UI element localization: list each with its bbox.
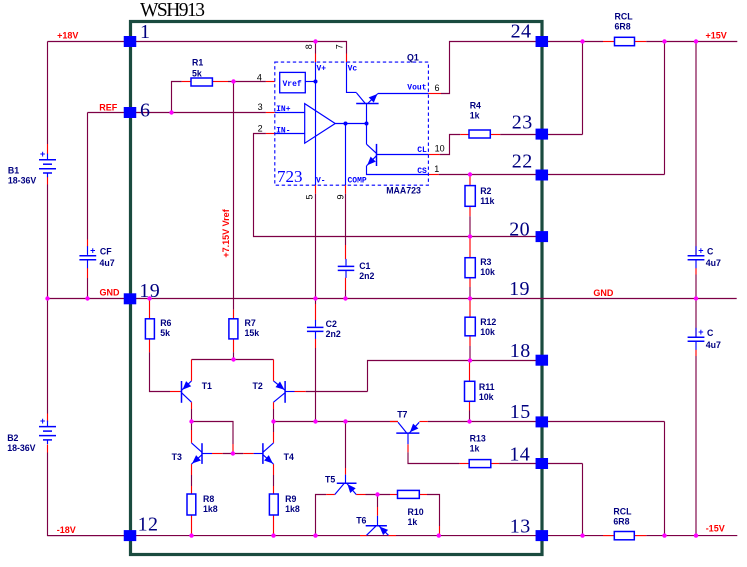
- svg-text:15k: 15k: [245, 328, 260, 338]
- svg-text:+18V: +18V: [57, 30, 78, 40]
- svg-text:2n2: 2n2: [326, 329, 341, 339]
- svg-text:B2: B2: [7, 433, 18, 443]
- svg-text:19: 19: [509, 278, 530, 300]
- svg-text:+: +: [90, 245, 95, 255]
- svg-text:WSH913: WSH913: [140, 0, 205, 21]
- svg-text:R8: R8: [203, 494, 214, 504]
- svg-text:4u7: 4u7: [706, 258, 721, 268]
- svg-text:T6: T6: [356, 516, 366, 526]
- svg-text:18-36V: 18-36V: [7, 443, 35, 453]
- svg-text:13: 13: [510, 516, 531, 538]
- svg-text:6: 6: [435, 83, 440, 93]
- svg-text:+: +: [40, 149, 45, 159]
- svg-text:10k: 10k: [480, 327, 495, 337]
- svg-text:6R8: 6R8: [615, 22, 631, 32]
- svg-text:Vc: Vc: [348, 65, 358, 74]
- svg-text:C2: C2: [326, 319, 337, 329]
- svg-text:8: 8: [304, 44, 314, 49]
- svg-text:C1: C1: [359, 261, 370, 271]
- svg-text:+: +: [40, 416, 45, 426]
- svg-text:22: 22: [512, 151, 533, 173]
- svg-text:+15V: +15V: [706, 31, 727, 41]
- svg-text:Q1: Q1: [407, 53, 419, 63]
- svg-text:T5: T5: [325, 475, 335, 485]
- svg-text:1: 1: [140, 21, 150, 43]
- svg-text:3: 3: [258, 102, 263, 112]
- svg-text:C: C: [707, 246, 714, 256]
- svg-text:CF: CF: [100, 246, 112, 256]
- svg-text:MAA723: MAA723: [386, 186, 421, 196]
- svg-text:12: 12: [138, 514, 159, 536]
- svg-text:T3: T3: [172, 452, 182, 462]
- svg-text:2n2: 2n2: [359, 271, 374, 281]
- svg-text:1: 1: [434, 164, 439, 174]
- svg-text:T1: T1: [202, 381, 212, 391]
- svg-text:5k: 5k: [160, 328, 170, 338]
- svg-text:V+: V+: [317, 65, 327, 74]
- svg-text:14: 14: [509, 444, 530, 466]
- svg-text:R11: R11: [479, 382, 495, 392]
- svg-text:5: 5: [305, 194, 315, 199]
- svg-text:10k: 10k: [480, 267, 495, 277]
- svg-text:T7: T7: [397, 410, 407, 420]
- svg-text:R12: R12: [480, 317, 496, 327]
- svg-text:R10: R10: [408, 507, 424, 517]
- svg-text:10: 10: [435, 144, 445, 154]
- svg-text:15: 15: [510, 401, 531, 423]
- svg-text:4: 4: [257, 73, 262, 83]
- svg-text:-18V: -18V: [57, 525, 76, 535]
- svg-text:1k8: 1k8: [285, 504, 300, 514]
- svg-text:5k: 5k: [192, 69, 202, 79]
- svg-text:V-: V-: [316, 177, 326, 186]
- svg-text:Vout: Vout: [407, 84, 426, 93]
- svg-text:IN-: IN-: [276, 126, 290, 135]
- svg-text:Vref: Vref: [283, 80, 302, 89]
- svg-text:11k: 11k: [480, 196, 494, 206]
- svg-text:+: +: [698, 245, 703, 255]
- svg-text:2: 2: [258, 124, 263, 134]
- svg-text:GND: GND: [593, 288, 614, 298]
- svg-text:+7.15V Vref: +7.15V Vref: [221, 208, 231, 257]
- svg-text:R7: R7: [245, 318, 256, 328]
- svg-text:19: 19: [139, 280, 160, 302]
- svg-text:CL: CL: [417, 146, 427, 155]
- svg-text:6R8: 6R8: [613, 516, 629, 526]
- svg-text:-15V: -15V: [706, 524, 725, 534]
- svg-text:C: C: [707, 328, 714, 338]
- svg-text:R13: R13: [470, 433, 486, 443]
- svg-text:9: 9: [336, 194, 346, 199]
- svg-text:1k: 1k: [470, 443, 480, 453]
- svg-text:4u7: 4u7: [100, 258, 115, 268]
- svg-text:18: 18: [510, 340, 531, 362]
- svg-text:1k8: 1k8: [203, 504, 218, 514]
- svg-text:24: 24: [511, 20, 532, 42]
- svg-text:R1: R1: [192, 58, 203, 68]
- svg-text:R4: R4: [470, 101, 481, 111]
- svg-text:REF: REF: [99, 102, 118, 112]
- svg-text:B1: B1: [8, 165, 19, 175]
- svg-text:R3: R3: [480, 257, 491, 267]
- svg-text:R9: R9: [285, 494, 296, 504]
- svg-text:T4: T4: [284, 452, 294, 462]
- svg-text:CS: CS: [417, 167, 427, 176]
- svg-text:23: 23: [512, 112, 533, 134]
- svg-text:18-36V: 18-36V: [8, 175, 36, 185]
- svg-text:T2: T2: [253, 381, 263, 391]
- svg-text:R6: R6: [160, 318, 171, 328]
- svg-text:+: +: [698, 327, 703, 337]
- svg-text:20: 20: [509, 218, 530, 240]
- svg-text:6: 6: [140, 100, 150, 122]
- svg-text:GND: GND: [100, 287, 121, 297]
- svg-text:723: 723: [277, 167, 303, 186]
- svg-text:1k: 1k: [470, 111, 480, 121]
- svg-text:10k: 10k: [479, 392, 494, 402]
- svg-text:COMP: COMP: [348, 177, 367, 186]
- svg-text:1k: 1k: [408, 517, 418, 527]
- svg-text:4u7: 4u7: [706, 340, 721, 350]
- svg-text:RCL: RCL: [613, 506, 632, 516]
- svg-text:RCL: RCL: [615, 12, 634, 22]
- svg-text:R2: R2: [480, 186, 491, 196]
- svg-text:7: 7: [335, 44, 345, 49]
- svg-text:IN+: IN+: [276, 105, 291, 114]
